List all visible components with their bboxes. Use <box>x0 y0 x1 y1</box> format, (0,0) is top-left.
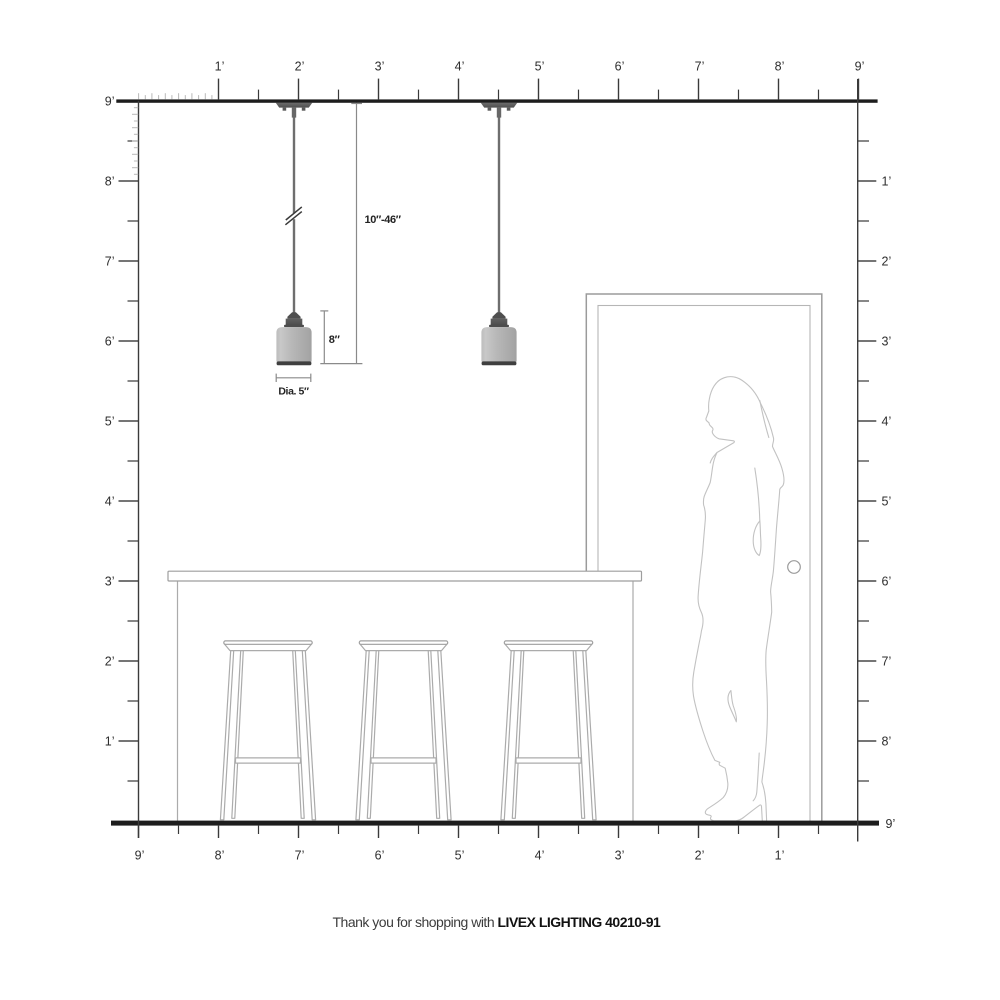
svg-text:2’: 2’ <box>882 254 892 268</box>
svg-text:1’: 1’ <box>882 174 892 188</box>
svg-text:7’: 7’ <box>882 654 892 668</box>
svg-text:1’: 1’ <box>105 734 115 748</box>
svg-text:4’: 4’ <box>105 494 115 508</box>
svg-text:9’: 9’ <box>886 817 896 831</box>
svg-text:8’: 8’ <box>105 174 115 188</box>
svg-text:1’: 1’ <box>215 59 225 73</box>
svg-text:2’: 2’ <box>695 848 705 862</box>
svg-text:8″: 8″ <box>329 334 341 346</box>
svg-text:8’: 8’ <box>775 59 785 73</box>
svg-text:3’: 3’ <box>375 59 385 73</box>
svg-text:5’: 5’ <box>455 848 465 862</box>
svg-text:4’: 4’ <box>535 848 545 862</box>
svg-text:5’: 5’ <box>105 414 115 428</box>
svg-text:7’: 7’ <box>695 59 705 73</box>
svg-text:Dia. 5″: Dia. 5″ <box>278 385 309 397</box>
svg-text:2’: 2’ <box>295 59 305 73</box>
svg-text:9’: 9’ <box>135 848 145 862</box>
svg-text:10″-46″: 10″-46″ <box>365 214 402 226</box>
svg-text:6’: 6’ <box>615 59 625 73</box>
svg-text:5’: 5’ <box>535 59 545 73</box>
svg-text:6’: 6’ <box>882 574 892 588</box>
svg-text:1’: 1’ <box>775 848 785 862</box>
svg-text:3’: 3’ <box>615 848 625 862</box>
svg-text:9’: 9’ <box>105 94 115 108</box>
svg-text:8’: 8’ <box>215 848 225 862</box>
svg-text:6’: 6’ <box>105 334 115 348</box>
svg-text:5’: 5’ <box>882 494 892 508</box>
svg-text:8’: 8’ <box>882 734 892 748</box>
svg-text:4’: 4’ <box>882 414 892 428</box>
svg-text:3’: 3’ <box>105 574 115 588</box>
svg-text:9’: 9’ <box>855 59 865 73</box>
svg-text:7’: 7’ <box>105 254 115 268</box>
svg-text:Thank you for shopping with LI: Thank you for shopping with LIVEX LIGHTI… <box>333 914 661 930</box>
svg-text:3’: 3’ <box>882 334 892 348</box>
svg-text:6’: 6’ <box>375 848 385 862</box>
svg-text:4’: 4’ <box>455 59 465 73</box>
svg-text:2’: 2’ <box>105 654 115 668</box>
svg-text:7’: 7’ <box>295 848 305 862</box>
